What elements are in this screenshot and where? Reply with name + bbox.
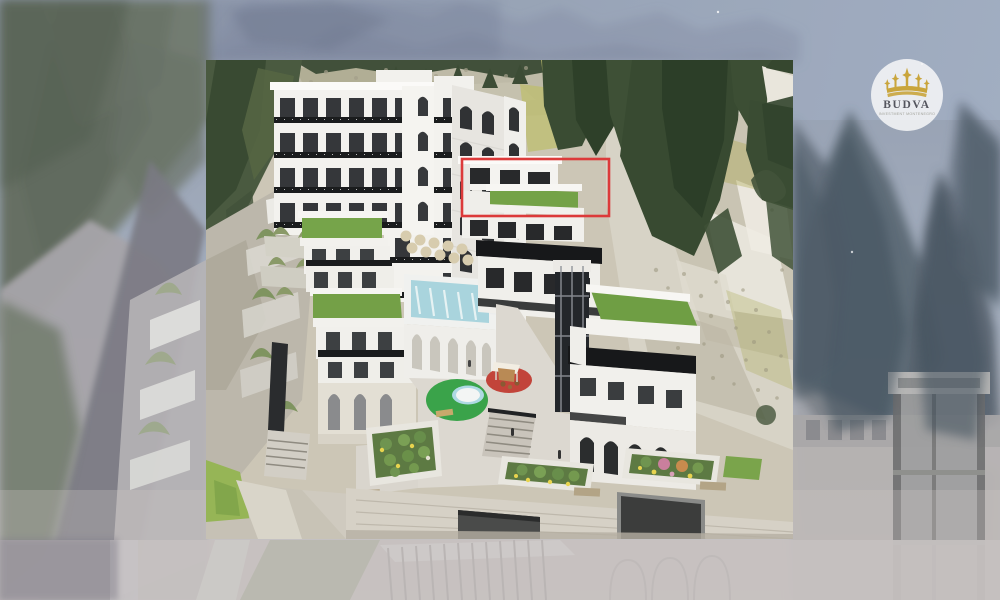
svg-text:BUDVA: BUDVA	[883, 99, 930, 111]
svg-text:INVESTMENT MONTENEGRO: INVESTMENT MONTENEGRO	[879, 112, 936, 116]
